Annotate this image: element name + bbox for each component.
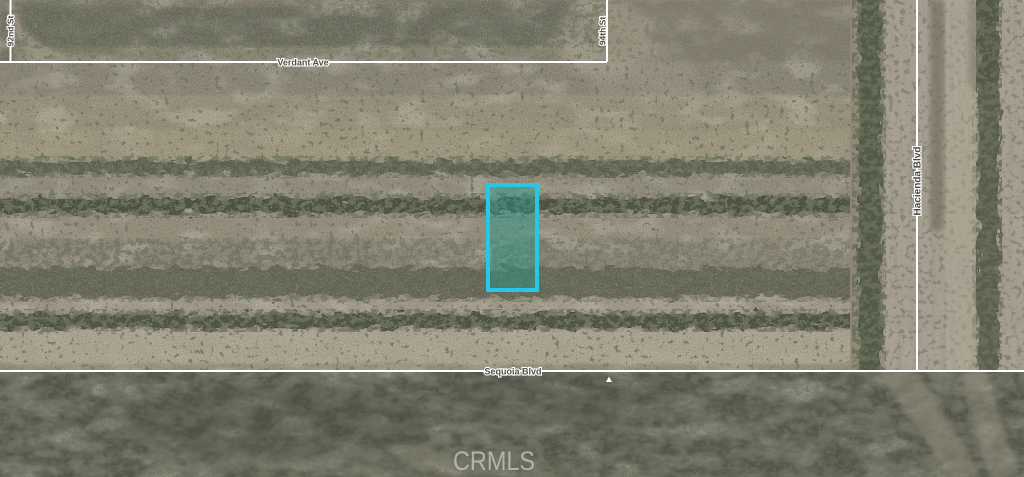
svg-text:92nd St: 92nd St bbox=[6, 15, 16, 46]
svg-text:Sequoia Blvd: Sequoia Blvd bbox=[484, 367, 541, 377]
svg-text:Verdant Ave: Verdant Ave bbox=[277, 58, 328, 68]
svg-text:CRMLS: CRMLS bbox=[453, 446, 535, 476]
svg-text:Hacienda Blvd: Hacienda Blvd bbox=[913, 147, 924, 216]
svg-text:94th St: 94th St bbox=[598, 17, 608, 46]
